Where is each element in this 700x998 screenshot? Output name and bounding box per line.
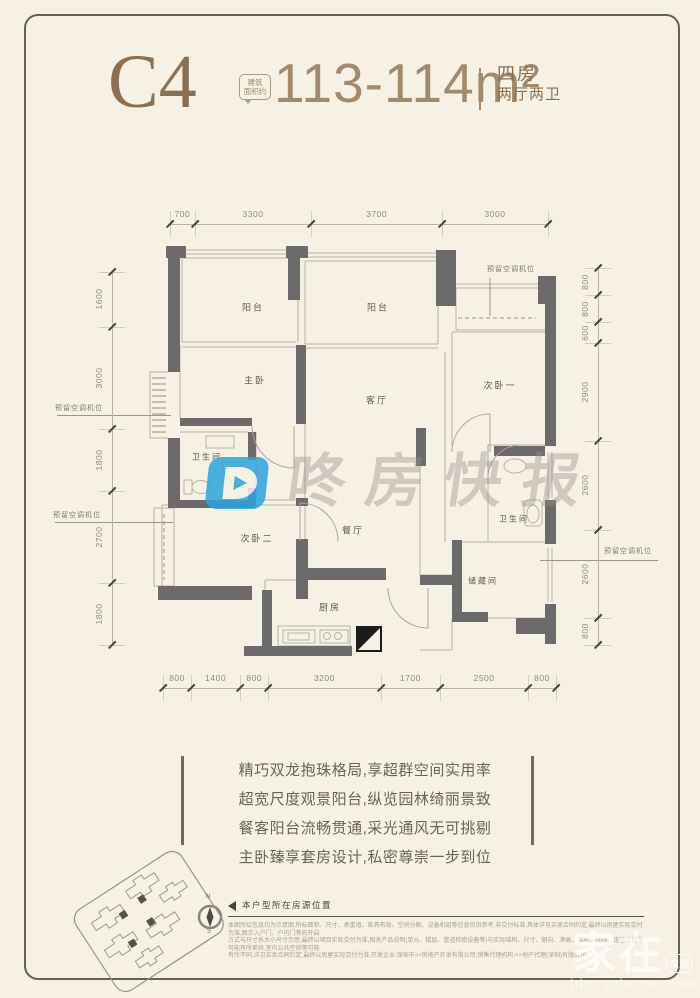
- ac-leader-line: [540, 560, 658, 561]
- layout-info: 四房 两厅两卫: [497, 63, 561, 105]
- corner-watermark-url: bbs.szhome.com: [570, 976, 697, 993]
- corner-watermark: 家在 深圳 bbs.szhome.com: [570, 932, 700, 998]
- room-label-bathroom-2: 卫生间: [499, 514, 529, 525]
- area-badge: 建筑 面积约: [239, 74, 271, 100]
- description-line: 精巧双龙抱珠格局,享超群空间实用率: [205, 756, 525, 785]
- corner-watermark-city: 深圳: [666, 954, 692, 973]
- legend-divider-line: [228, 916, 644, 917]
- description-line: 主卧臻享套房设计,私密尊崇一步到位: [205, 843, 525, 872]
- dim-value: 800: [580, 301, 590, 317]
- dim-value: 800: [580, 274, 590, 290]
- watermark-text: 咚房快报: [284, 450, 605, 514]
- dim-value: 3300: [195, 209, 312, 219]
- legend-label: 本户型所在房源位置: [242, 899, 332, 911]
- dim-line: [163, 688, 556, 689]
- unit-code: C4: [108, 44, 197, 120]
- dim-value: 2600: [580, 563, 590, 584]
- room-label-living-room: 客厅: [366, 394, 388, 407]
- room-label-bedroom-1: 次卧一: [483, 379, 516, 392]
- room-label-storage: 储藏间: [468, 576, 498, 587]
- dim-value: 3200: [268, 673, 380, 683]
- room-label-kitchen: 厨房: [319, 601, 341, 614]
- description-bar-right: [531, 756, 534, 845]
- dim-value: 2900: [580, 381, 590, 402]
- floorplan-page: C4 建筑 面积约 113-114m² 四房 两厅两卫: [0, 0, 700, 998]
- ac-leader-line: [55, 522, 173, 523]
- ac-leader-line: [57, 415, 171, 416]
- dim-value: 3700: [311, 209, 442, 219]
- ac-label-left-1: 预留空调机位: [55, 403, 103, 413]
- room-label-master-bedroom: 主卧: [244, 374, 266, 387]
- description: 精巧双龙抱珠格局,享超群空间实用率 超宽尺度观景阳台,纵览园林绮丽景致 餐客阳台…: [205, 756, 525, 872]
- dim-value: 800: [240, 673, 268, 683]
- dim-value: 3000: [442, 209, 548, 219]
- area-badge-line1: 建筑: [240, 78, 270, 87]
- room-label-balcony-2: 阳台: [367, 301, 389, 314]
- compass-north-label: N: [206, 894, 210, 900]
- layout-line2: 两厅两卫: [497, 85, 561, 105]
- dim-value: 700: [170, 209, 195, 219]
- corner-watermark-text: 家在: [572, 932, 664, 976]
- description-line: 餐客阳台流畅贯通,采光通风无可挑剔: [205, 814, 525, 843]
- dim-value: 800: [580, 624, 590, 640]
- dim-value: 800: [528, 673, 556, 683]
- description-line: 超宽尺度观景阳台,纵览园林绮丽景致: [205, 785, 525, 814]
- area-badge-line2: 面积约: [240, 87, 270, 96]
- dim-value: 1600: [94, 289, 104, 310]
- dim-line: [112, 272, 113, 645]
- dim-value: 1400: [191, 673, 240, 683]
- dim-value: 1700: [381, 673, 441, 683]
- legend-arrow-icon: [228, 901, 236, 911]
- ac-label-top-right: 预留空调机位: [487, 264, 535, 274]
- ac-label-right: 预留空调机位: [604, 546, 652, 556]
- dim-value: 1800: [94, 450, 104, 471]
- dim-value: 2700: [94, 527, 104, 548]
- room-label-dining-room: 餐厅: [342, 524, 364, 537]
- dim-value: 3000: [94, 368, 104, 389]
- dim-value: 800: [163, 673, 191, 683]
- layout-line1: 四房: [497, 63, 561, 85]
- compass-south-label: S: [207, 929, 211, 935]
- dim-value: 600: [580, 325, 590, 341]
- room-label-balcony-1: 阳台: [242, 301, 264, 314]
- dim-line: [170, 224, 548, 225]
- watermark-logo-icon: [203, 456, 271, 510]
- dim-value: 2500: [440, 673, 528, 683]
- header-divider: [479, 68, 481, 110]
- dim-value: 1800: [94, 604, 104, 625]
- room-label-bedroom-2: 次卧二: [240, 532, 273, 545]
- description-bar-left: [181, 756, 184, 845]
- ac-label-left-2: 预留空调机位: [53, 510, 101, 520]
